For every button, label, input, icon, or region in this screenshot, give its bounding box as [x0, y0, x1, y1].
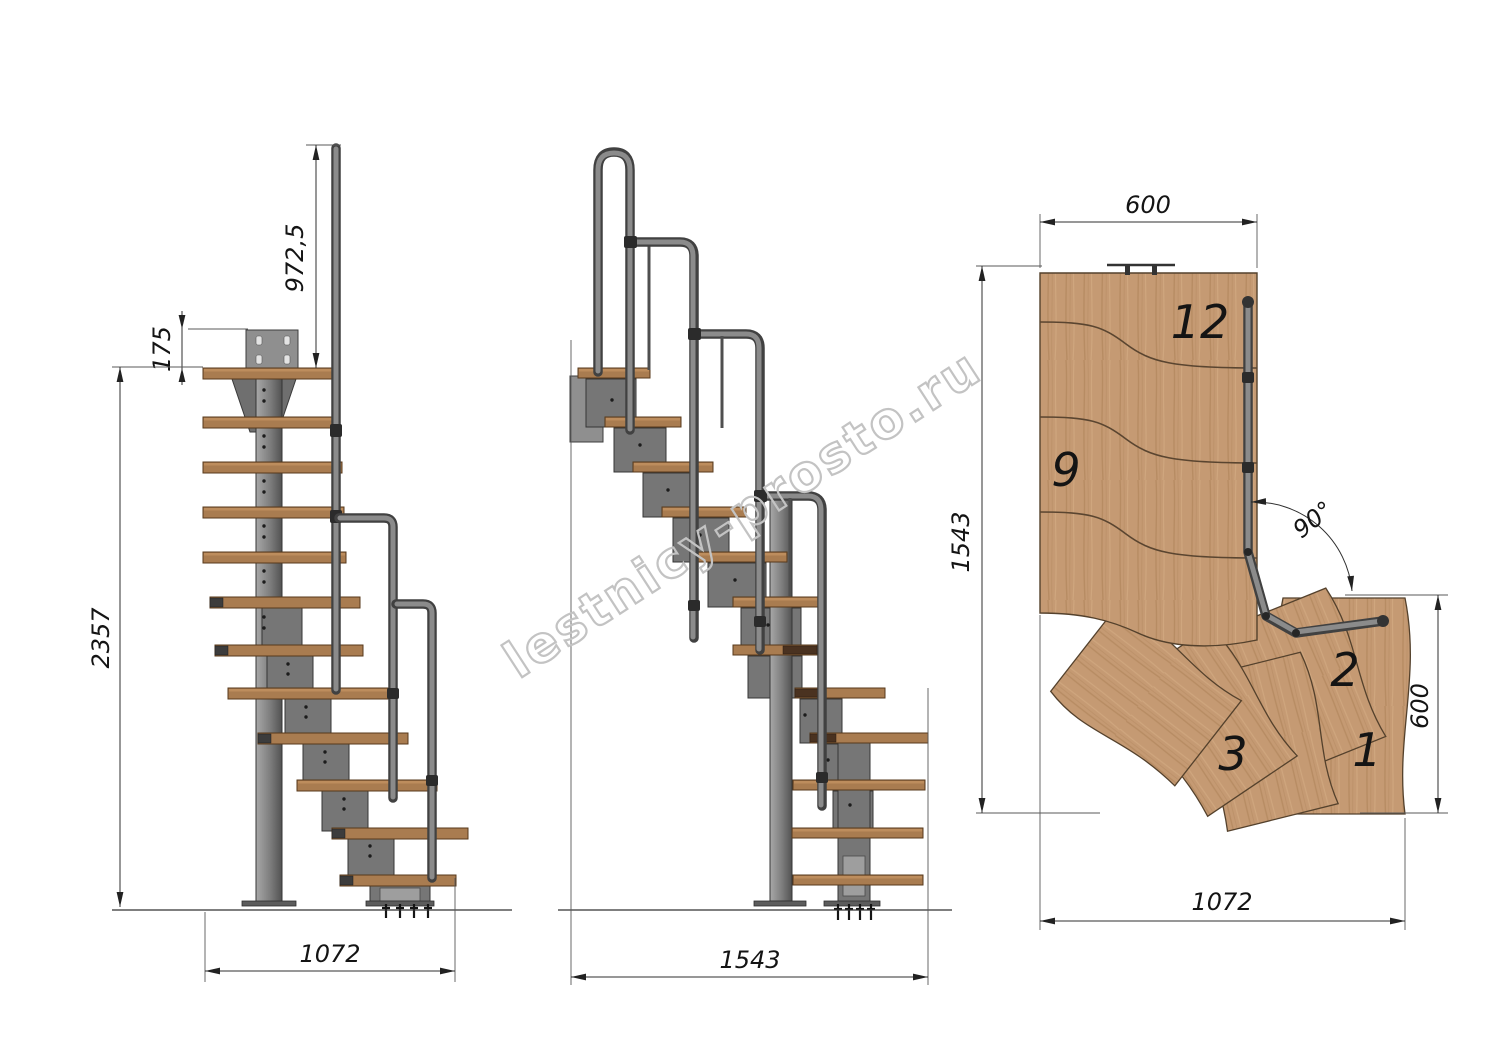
anchor-bolts-side	[834, 904, 875, 920]
plan-view: 12 9 2 3 1 600 1543 90° 600	[947, 191, 1448, 930]
step-label-9: 9	[1051, 443, 1080, 497]
dim-plan-top-width: 600	[1040, 191, 1257, 268]
step-label-2: 2	[1330, 643, 1359, 697]
dim-text-plan-length: 1543	[947, 511, 975, 572]
dim-text-plan-top-width: 600	[1125, 191, 1171, 219]
step-label-3: 3	[1218, 727, 1247, 781]
staircase-technical-drawing: 972,5 175 2357 1072	[0, 0, 1500, 1061]
drawing-page: 972,5 175 2357 1072	[0, 0, 1500, 1061]
step-label-1: 1	[1352, 723, 1381, 777]
column-base-flange	[242, 901, 296, 906]
dim-text-side-length: 1543	[719, 946, 780, 974]
dim-text-total-height: 2357	[87, 607, 115, 669]
dim-text-front-width: 1072	[299, 940, 360, 968]
dim-text-plan-entry-depth: 600	[1406, 683, 1434, 729]
dim-text-handrail-height: 972,5	[281, 224, 309, 293]
dim-text-plate-offset: 175	[148, 326, 176, 372]
dim-text-turn-angle: 90°	[1288, 496, 1339, 544]
plan-handrail	[1242, 296, 1389, 637]
dim-turn-angle: 90°	[1251, 496, 1352, 591]
dim-total-height: 2357	[87, 367, 203, 907]
step-label-12: 12	[1171, 295, 1230, 349]
dim-text-plan-bottom-width: 1072	[1191, 888, 1252, 916]
front-elevation-view: 972,5 175 2357 1072	[87, 145, 512, 982]
